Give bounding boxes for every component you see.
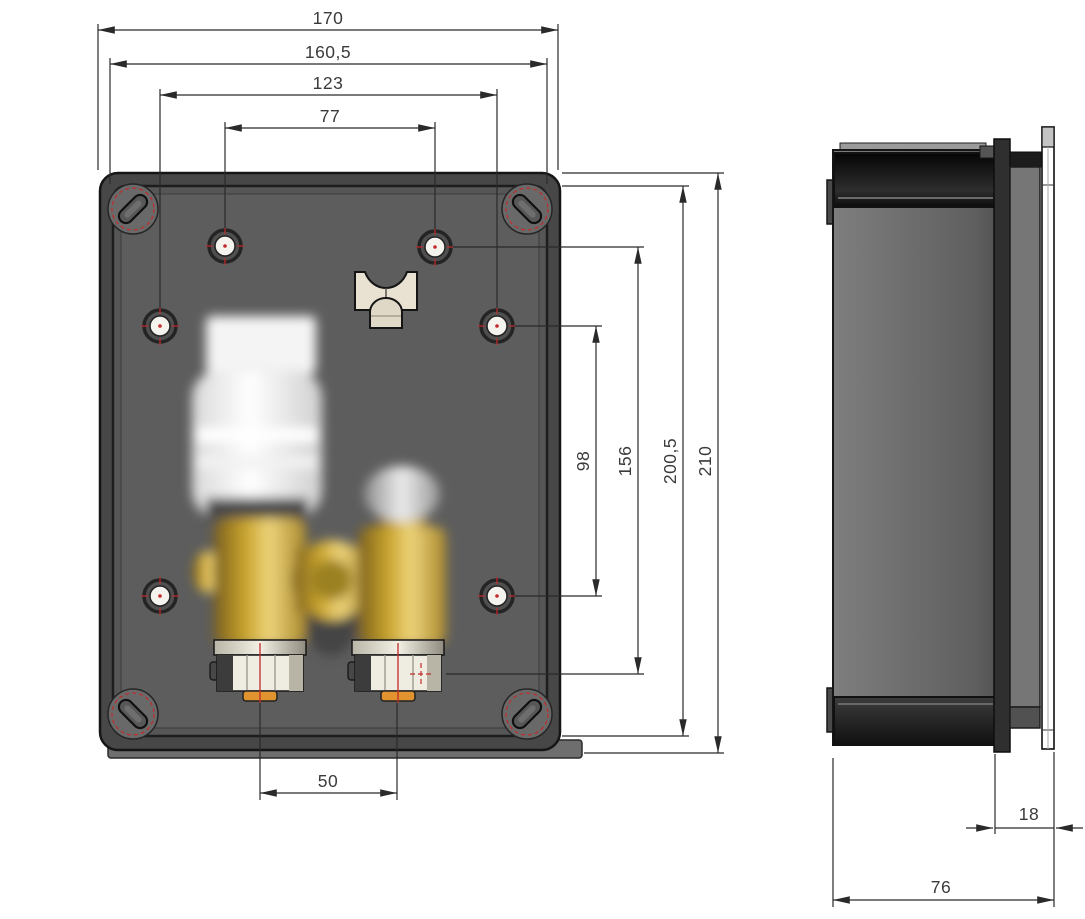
side-recessed-panel	[1010, 167, 1040, 707]
thermostat-head	[192, 370, 322, 518]
dim-label-inner-width: 160,5	[305, 42, 351, 62]
dim-label-inner-height: 200,5	[660, 438, 680, 484]
corner-screw	[502, 689, 552, 739]
dim-label-valve-spacing: 50	[318, 771, 338, 791]
corner-screw	[108, 184, 158, 234]
side-box-body	[833, 150, 995, 745]
dim-label-hole-span-inner: 77	[320, 106, 340, 126]
valve-box-drawing: 170 160,5 123 77 50 98 156 200,5 210 18 …	[0, 0, 1085, 919]
corner-screw	[502, 184, 552, 234]
side-recessed-panel-bottom	[1010, 707, 1040, 728]
technical-drawing-page: 170 160,5 123 77 50 98 156 200,5 210 18 …	[0, 0, 1085, 919]
dim-label-outer-width: 170	[313, 8, 344, 28]
side-flange-strip	[994, 139, 1010, 752]
side-view	[827, 127, 1054, 752]
dim-label-outer-height: 210	[695, 446, 715, 477]
dim-label-hole-row-gap: 98	[573, 451, 593, 471]
dim-label-total-depth: 76	[931, 877, 951, 897]
valve-body-right	[358, 526, 446, 646]
side-cover-plate-top	[1042, 127, 1054, 147]
dim-label-top-hole-to-valve: 156	[615, 446, 635, 477]
corner-screw	[108, 689, 158, 739]
side-panel-top-band	[1010, 152, 1042, 167]
dim-label-hole-span-outer: 123	[313, 73, 344, 93]
front-view	[100, 173, 582, 758]
dim-label-protrusion-depth: 18	[1019, 804, 1039, 824]
